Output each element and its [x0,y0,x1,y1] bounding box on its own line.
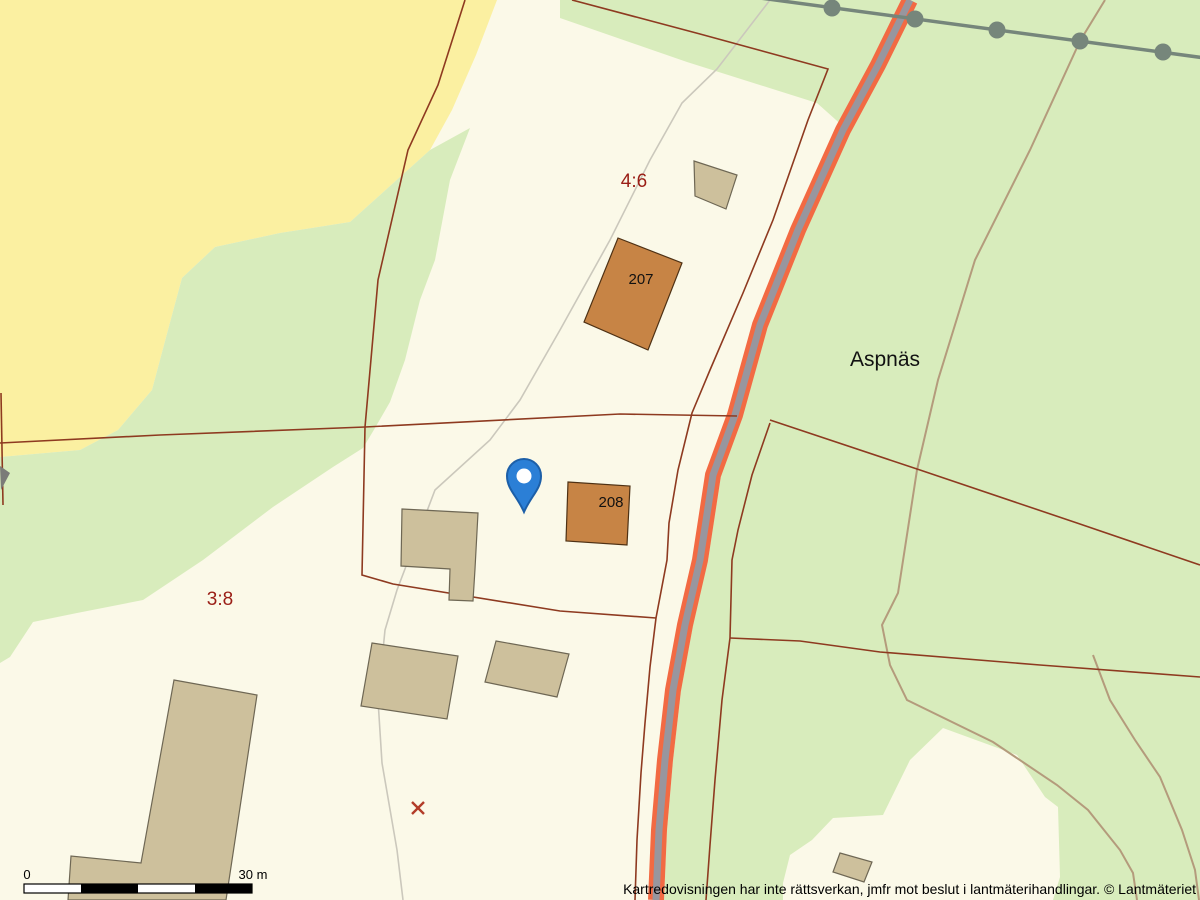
parcel-label-38: 3:8 [207,589,233,610]
building-label-208: 208 [598,494,623,511]
parcel-label-46: 4:6 [621,171,647,192]
cadastral-map: 4:6 207 208 Aspnäs 3:8 0 30 m Kartredovi… [0,0,1200,900]
map-disclaimer: Kartredovisningen har inte rättsverkan, … [623,881,1196,897]
map-canvas[interactable]: 4:6 207 208 Aspnäs 3:8 0 30 m Kartredovi… [0,0,1200,900]
power-pole-icon [824,0,841,17]
pin-hole [517,469,532,484]
power-pole-icon [1155,44,1172,61]
building-208 [566,482,630,545]
place-label-aspnas: Aspnäs [850,348,920,371]
outbuilding [361,643,458,719]
scale-end-label: 30 m [239,867,268,882]
power-pole-icon [989,22,1006,39]
scale-start-label: 0 [23,867,30,882]
power-pole-icon [1072,33,1089,50]
building-label-207: 207 [628,271,653,288]
power-pole-icon [907,11,924,28]
